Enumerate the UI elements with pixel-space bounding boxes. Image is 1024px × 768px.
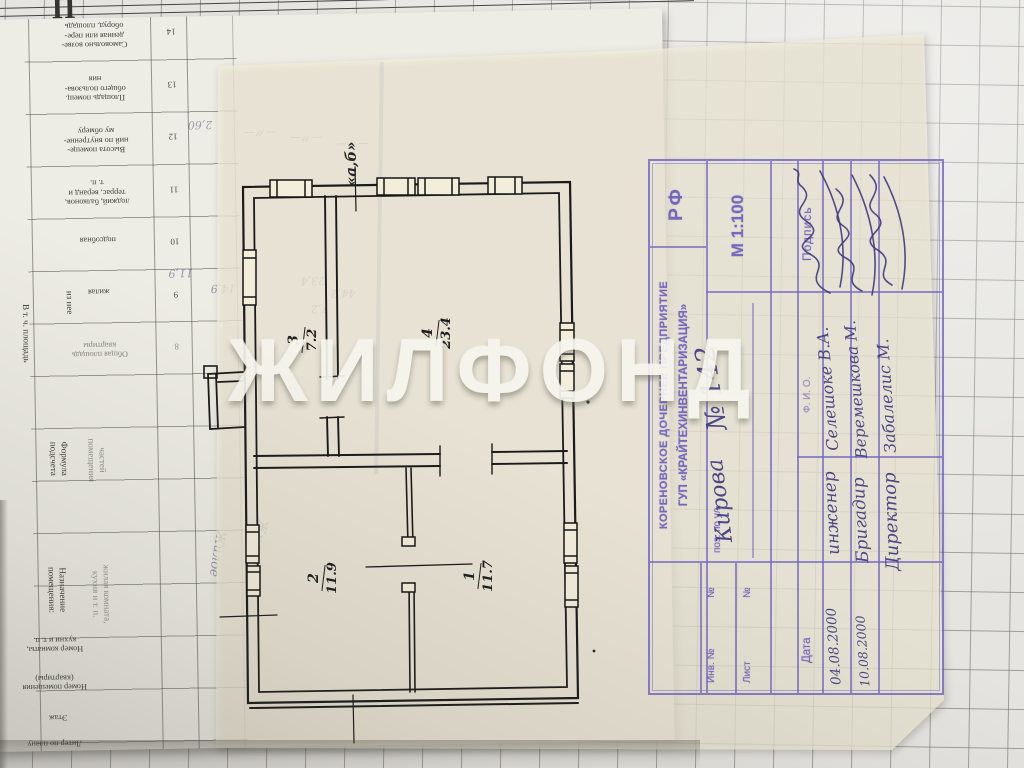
stamp-sheet-no: № [742, 587, 753, 598]
handwritten-role: Бригадир [849, 477, 873, 564]
stamp-line [700, 563, 702, 693]
partition-2-1 [406, 468, 415, 692]
stamp-country: РФ [666, 161, 688, 246]
window-icon [243, 250, 256, 305]
handwritten-date: 10.08.2000 [853, 615, 873, 687]
photographed-document: П 14 13 12 11 10 9 8 Самовольно возве- д… [0, 0, 1024, 768]
handwritten-role: Директор [879, 472, 903, 571]
door-swing-tick [366, 564, 472, 567]
handwritten-name: Веремешкова М. [841, 320, 871, 460]
stamp-line [706, 291, 770, 293]
left-edge-shadow [0, 500, 8, 768]
handwritten-date: 04.08.2000 [823, 607, 844, 685]
window-icon [418, 178, 459, 195]
bottom-wall-line [250, 703, 578, 708]
room-label-1: 1 11.7 [462, 550, 492, 602]
bottom-shadow [0, 740, 700, 768]
plan-liter-note: «а,б» [342, 108, 364, 186]
inner-wall [254, 193, 567, 692]
stamp-line [735, 563, 737, 693]
floor-plan [170, 155, 600, 747]
window-icon [270, 180, 312, 197]
zhilfond-watermark: ЖИЛФОНД [228, 320, 758, 422]
stamp-line [650, 561, 797, 563]
room-area: 11.7 [481, 560, 496, 592]
room-number: 2 [306, 573, 322, 583]
stamp-line [650, 246, 706, 248]
stamp-frame: КОРЕНОВСКОЕ ДОЧЕРНЕЕ ПРЕДПРИЯТИЕ ГУП «КР… [648, 159, 944, 695]
window-icon [377, 178, 415, 195]
door-jambs-horizontal [440, 444, 492, 476]
stamp-line [770, 161, 772, 693]
stamp-inv-no: № [706, 587, 717, 598]
outer-wall [243, 182, 578, 703]
window-icon [246, 525, 259, 563]
handwritten-role: инженер [820, 471, 844, 556]
room-label-2: 2 11.9 [306, 550, 336, 606]
ink-dots [586, 400, 595, 652]
stamp-fio-label: Ф. И. О. [802, 377, 813, 413]
bti-stamp: КОРЕНОВСКОЕ ДОЧЕРНЕЕ ПРЕДПРИЯТИЕ ГУП «КР… [648, 163, 940, 695]
stamp-sheet-label: Лист [742, 661, 753, 683]
room-area: 11.9 [325, 562, 340, 594]
window-icon [488, 177, 522, 194]
stamp-date-label: Дата [801, 638, 813, 663]
divider-horizontal [254, 451, 567, 468]
door-jamb-block [402, 537, 415, 546]
handwritten-name: Селешоке В.А. [813, 326, 843, 451]
window-icon [247, 566, 260, 596]
door-jamb-block [402, 583, 415, 592]
stamp-inv-label: Инв. № [706, 649, 717, 683]
porch-post [204, 366, 217, 378]
room-number: 1 [462, 571, 478, 581]
signature-scribble [862, 169, 912, 293]
window-icon [564, 523, 577, 563]
stamp-scale: М 1:100 [728, 161, 748, 291]
window-icon [565, 566, 578, 607]
handwritten-street: Кирова [703, 457, 738, 544]
